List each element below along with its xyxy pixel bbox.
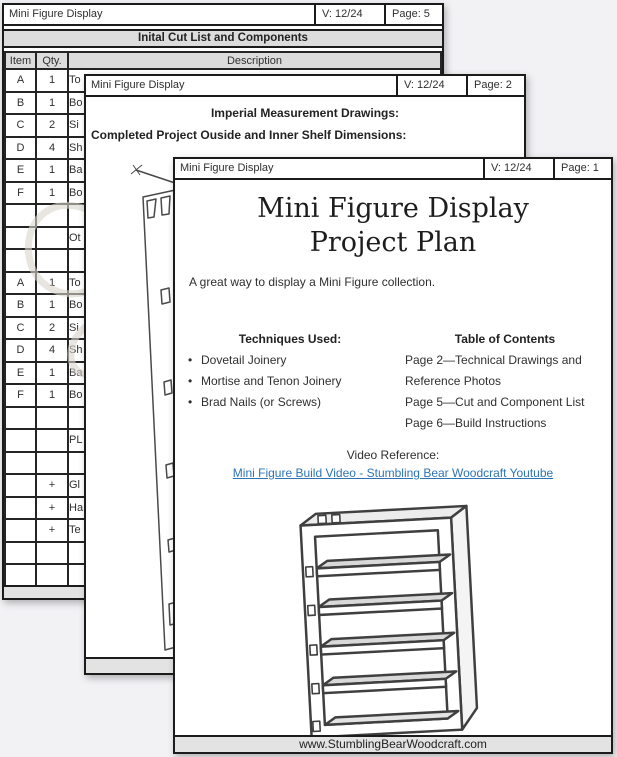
list-item: • Dovetail Joinery [175, 350, 405, 371]
cell-item: E [5, 159, 36, 182]
cover-columns: Techniques Used: • Dovetail Joinery • Mo… [175, 329, 611, 434]
cell-qty: 1 [36, 294, 68, 317]
cell-item [5, 519, 36, 542]
cell-qty: 4 [36, 339, 68, 362]
page2-header: Mini Figure Display V: 12/24 Page: 2 [86, 76, 524, 97]
cell-item: C [5, 114, 36, 137]
cutlist-banner: Inital Cut List and Components [4, 29, 442, 48]
imperial-drawings-heading: Imperial Measurement Drawings: [86, 106, 524, 120]
toc-entry: Page 2—Technical Drawings and [405, 350, 605, 371]
toc-list: Page 2—Technical Drawings and Reference … [405, 350, 605, 434]
cell-item: F [5, 384, 36, 407]
cover-title-line1: Mini Figure Display [175, 192, 611, 226]
list-item: • Brad Nails (or Screws) [175, 392, 405, 413]
cell-item: D [5, 137, 36, 160]
cell-item: D [5, 339, 36, 362]
cell-item [5, 429, 36, 452]
youtube-video-link[interactable]: Mini Figure Build Video - Stumbling Bear… [233, 466, 553, 480]
bullet-icon: • [175, 371, 201, 392]
cell-item: A [5, 69, 36, 92]
cell-item [5, 542, 36, 565]
cell-qty [36, 227, 68, 250]
cell-qty: 4 [36, 137, 68, 160]
cell-item: E [5, 362, 36, 385]
col-description: Description [68, 52, 441, 69]
cell-qty: 2 [36, 114, 68, 137]
cell-qty: 1 [36, 362, 68, 385]
toc-heading: Table of Contents [405, 329, 605, 350]
toc-column: Table of Contents Page 2—Technical Drawi… [405, 329, 605, 434]
cell-qty [36, 407, 68, 430]
page-sheet-1: Mini Figure Display V: 12/24 Page: 1 Min… [173, 157, 613, 754]
cell-qty: 1 [36, 272, 68, 295]
intro-text: A great way to display a Mini Figure col… [175, 275, 611, 289]
cover-title-line2: Project Plan [175, 226, 611, 260]
cell-item [5, 497, 36, 520]
page1-doc-title: Mini Figure Display [175, 159, 483, 178]
cell-qty: 1 [36, 384, 68, 407]
bullet-icon: • [175, 350, 201, 371]
page5-header: Mini Figure Display V: 12/24 Page: 5 [4, 5, 442, 26]
page5-page-number: Page: 5 [384, 5, 442, 24]
cell-item: A [5, 272, 36, 295]
dimensions-heading: Completed Project Ouside and Inner Shelf… [86, 128, 524, 142]
cell-item [5, 227, 36, 250]
cell-qty [36, 542, 68, 565]
shelf-illustration [293, 501, 493, 744]
shelf-illustration-wrap [175, 501, 611, 749]
cell-item: B [5, 92, 36, 115]
cell-qty: 2 [36, 317, 68, 340]
page5-doc-title: Mini Figure Display [4, 5, 314, 24]
video-link-row: Mini Figure Build Video - Stumbling Bear… [175, 462, 611, 484]
cell-qty [36, 204, 68, 227]
cell-item [5, 564, 36, 587]
cell-qty [36, 564, 68, 587]
video-reference-label: Video Reference: [175, 448, 611, 462]
cell-item: C [5, 317, 36, 340]
cell-qty: 1 [36, 92, 68, 115]
cell-qty: 1 [36, 182, 68, 205]
technique-label: Dovetail Joinery [201, 350, 286, 371]
toc-entry: Page 5—Cut and Component List [405, 392, 605, 413]
page2-version: V: 12/24 [396, 76, 466, 95]
website-footer: www.StumblingBearWoodcraft.com [175, 735, 611, 752]
toc-entry: Reference Photos [405, 371, 605, 392]
page2-doc-title: Mini Figure Display [86, 76, 396, 95]
page5-version: V: 12/24 [314, 5, 384, 24]
list-item: • Mortise and Tenon Joinery [175, 371, 405, 392]
cell-qty: + [36, 497, 68, 520]
cell-qty [36, 249, 68, 272]
bullet-icon: • [175, 392, 201, 413]
page2-page-number: Page: 2 [466, 76, 524, 95]
cell-qty [36, 452, 68, 475]
cell-item [5, 474, 36, 497]
cell-item [5, 204, 36, 227]
cell-qty: + [36, 474, 68, 497]
toc-entry: Page 6—Build Instructions [405, 413, 605, 434]
techniques-column: Techniques Used: • Dovetail Joinery • Mo… [175, 329, 405, 434]
cover-title: Mini Figure Display Project Plan [175, 192, 611, 260]
techniques-list: • Dovetail Joinery • Mortise and Tenon J… [175, 350, 405, 413]
page1-version: V: 12/24 [483, 159, 553, 178]
cell-item: B [5, 294, 36, 317]
technique-label: Mortise and Tenon Joinery [201, 371, 342, 392]
technique-label: Brad Nails (or Screws) [201, 392, 321, 413]
cell-item [5, 407, 36, 430]
cell-qty: 1 [36, 69, 68, 92]
techniques-heading: Techniques Used: [175, 329, 405, 350]
cutlist-header-row: Item Qty. Description [5, 52, 441, 69]
cell-item [5, 452, 36, 475]
col-item: Item [5, 52, 36, 69]
cell-qty [36, 429, 68, 452]
cell-item: F [5, 182, 36, 205]
cell-item [5, 249, 36, 272]
cell-qty: + [36, 519, 68, 542]
cell-qty: 1 [36, 159, 68, 182]
col-qty: Qty. [36, 52, 68, 69]
page1-page-number: Page: 1 [553, 159, 611, 178]
technical-drawing [92, 162, 182, 662]
page1-header: Mini Figure Display V: 12/24 Page: 1 [175, 159, 611, 180]
